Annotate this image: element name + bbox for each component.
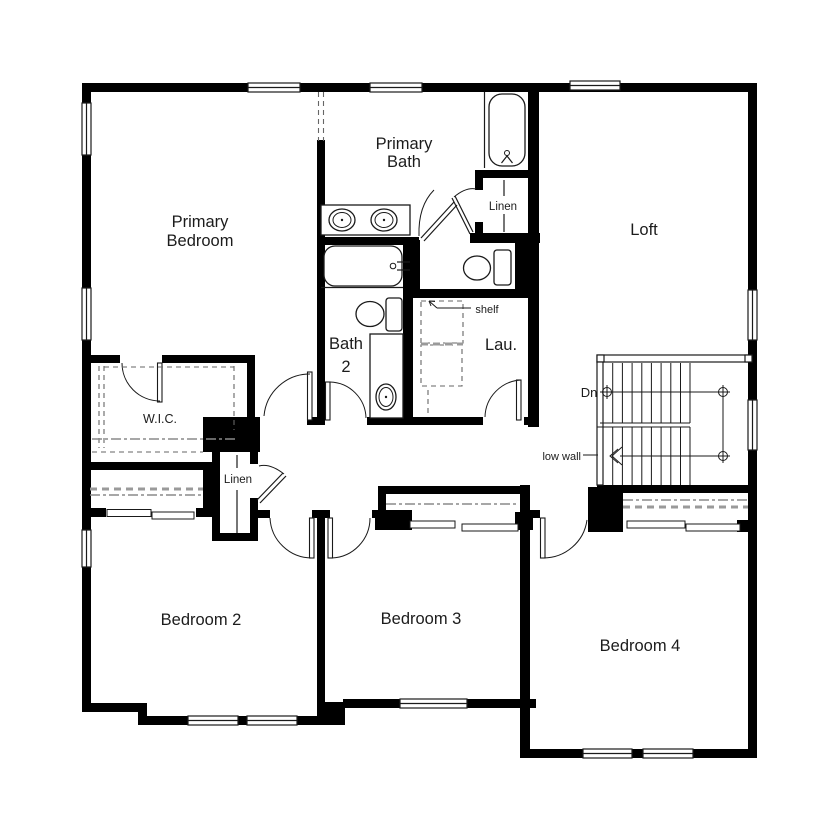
bedroom4-closet	[623, 500, 748, 531]
label-bedroom4: Bedroom 4	[600, 637, 681, 655]
label-bath2-line2: 2	[341, 358, 350, 376]
label-primary-bedroom-line2: Bedroom	[167, 232, 234, 250]
window	[748, 400, 757, 450]
label-linen-upper: Linen	[489, 201, 517, 213]
window	[247, 716, 297, 725]
door-water-closet	[419, 190, 457, 241]
floor-plan: Primary Bedroom Primary Bath Loft Linen …	[0, 0, 840, 840]
label-bath2-line1: Bath	[329, 335, 363, 353]
label-loft: Loft	[630, 221, 658, 239]
label-bedroom2: Bedroom 2	[161, 611, 242, 629]
window	[748, 290, 757, 340]
door-bedroom2	[270, 518, 314, 558]
door-bedroom4	[541, 518, 588, 558]
label-wic: W.I.C.	[143, 412, 177, 426]
toilet-fixture	[356, 298, 402, 331]
door-linen-upper	[452, 189, 476, 234]
shower-tub-fixture	[485, 92, 526, 168]
label-shelf: shelf	[475, 304, 499, 316]
toilet-fixture	[464, 250, 512, 285]
label-primary-bath-line2: Bath	[387, 153, 421, 171]
bedroom2-closet	[90, 489, 203, 519]
leader-lines	[429, 301, 598, 455]
door-linen-lower	[257, 465, 286, 503]
washer-dryer-dashed	[421, 301, 463, 416]
label-linen-lower: Linen	[224, 474, 252, 486]
door-bath2	[326, 382, 367, 420]
door-bedroom3	[328, 518, 370, 558]
door-primary-bedroom	[264, 372, 312, 420]
bathtub-fixture	[321, 246, 410, 288]
floor-plan-svg: Primary Bedroom Primary Bath Loft Linen …	[0, 0, 840, 840]
door-wic	[122, 363, 162, 402]
window	[82, 103, 91, 155]
wic-shelving-dashed	[92, 366, 235, 452]
label-dn: Dn	[581, 385, 598, 400]
label-bedroom3: Bedroom 3	[381, 610, 462, 628]
window	[248, 83, 300, 92]
label-primary-bath-line1: Primary	[376, 135, 434, 153]
vanity-sink-fixture	[370, 334, 403, 418]
window	[643, 749, 693, 758]
window	[82, 530, 91, 567]
stair-treads-upper	[613, 363, 690, 423]
label-low-wall: low wall	[542, 451, 581, 463]
window	[370, 83, 422, 92]
staircase	[597, 355, 752, 485]
door-laundry	[485, 380, 521, 420]
cased-opening	[319, 92, 324, 141]
stair-direction-arrows	[600, 385, 730, 465]
label-primary-bedroom-line1: Primary	[172, 213, 230, 231]
window	[570, 81, 620, 90]
window	[400, 699, 467, 708]
double-vanity-fixture	[321, 205, 410, 235]
window	[82, 288, 91, 340]
shelf-leader	[429, 301, 471, 308]
label-laundry: Lau.	[485, 336, 517, 354]
window	[188, 716, 238, 725]
walls	[82, 83, 757, 758]
window	[583, 749, 632, 758]
